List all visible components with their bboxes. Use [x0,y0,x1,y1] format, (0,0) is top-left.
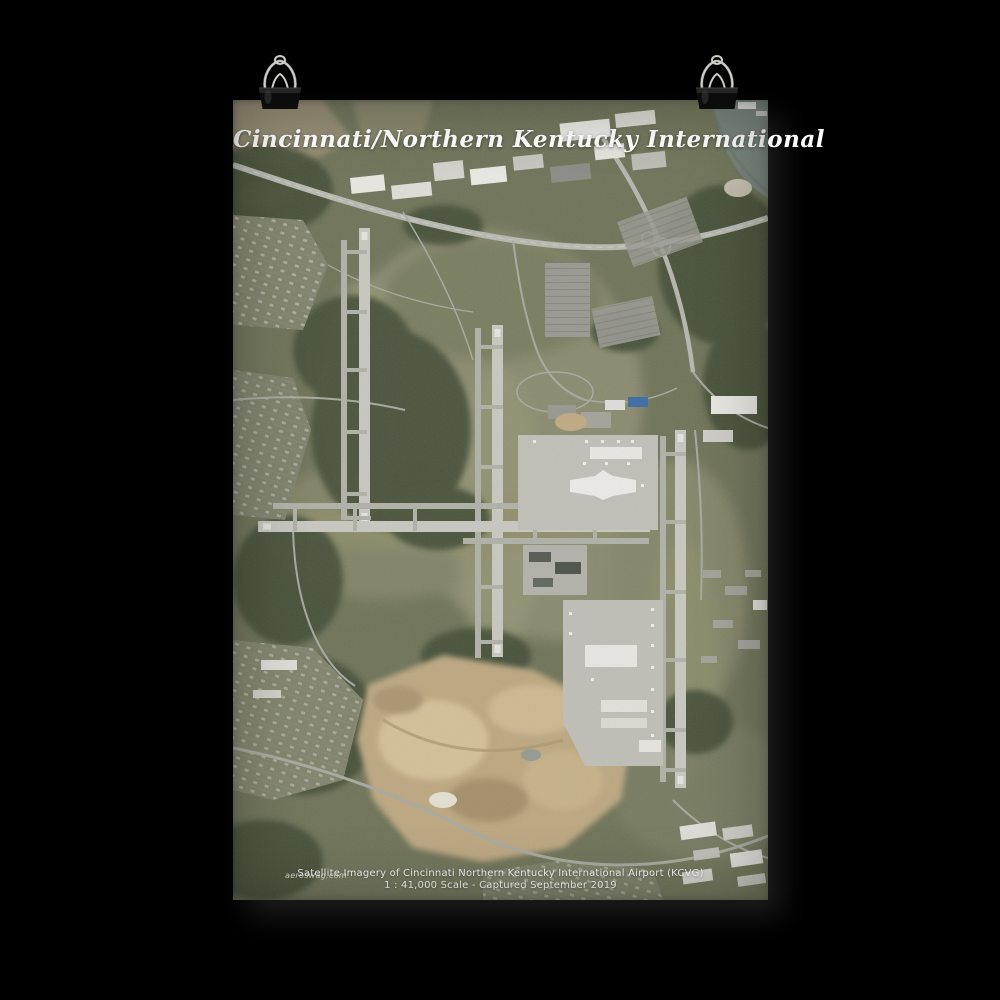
poster: Cincinnati/Northern Kentucky Internation… [233,100,768,900]
tone-overlay [233,100,768,900]
clip-body [259,88,301,109]
caption-line-2: 1 : 41,000 Scale - Captured September 20… [233,880,768,892]
binder-clip-left [248,50,312,110]
binder-clip-right [685,50,749,110]
satellite-map [233,100,768,900]
product-photo-scene: Cincinnati/Northern Kentucky Internation… [0,0,1000,1000]
clip-body [696,88,738,109]
watermark: aeroswag.com [285,871,347,880]
clip-wire-handle [265,56,296,89]
clip-wire-handle [702,56,733,89]
poster-title: Cincinnati/Northern Kentucky Internation… [233,126,768,153]
